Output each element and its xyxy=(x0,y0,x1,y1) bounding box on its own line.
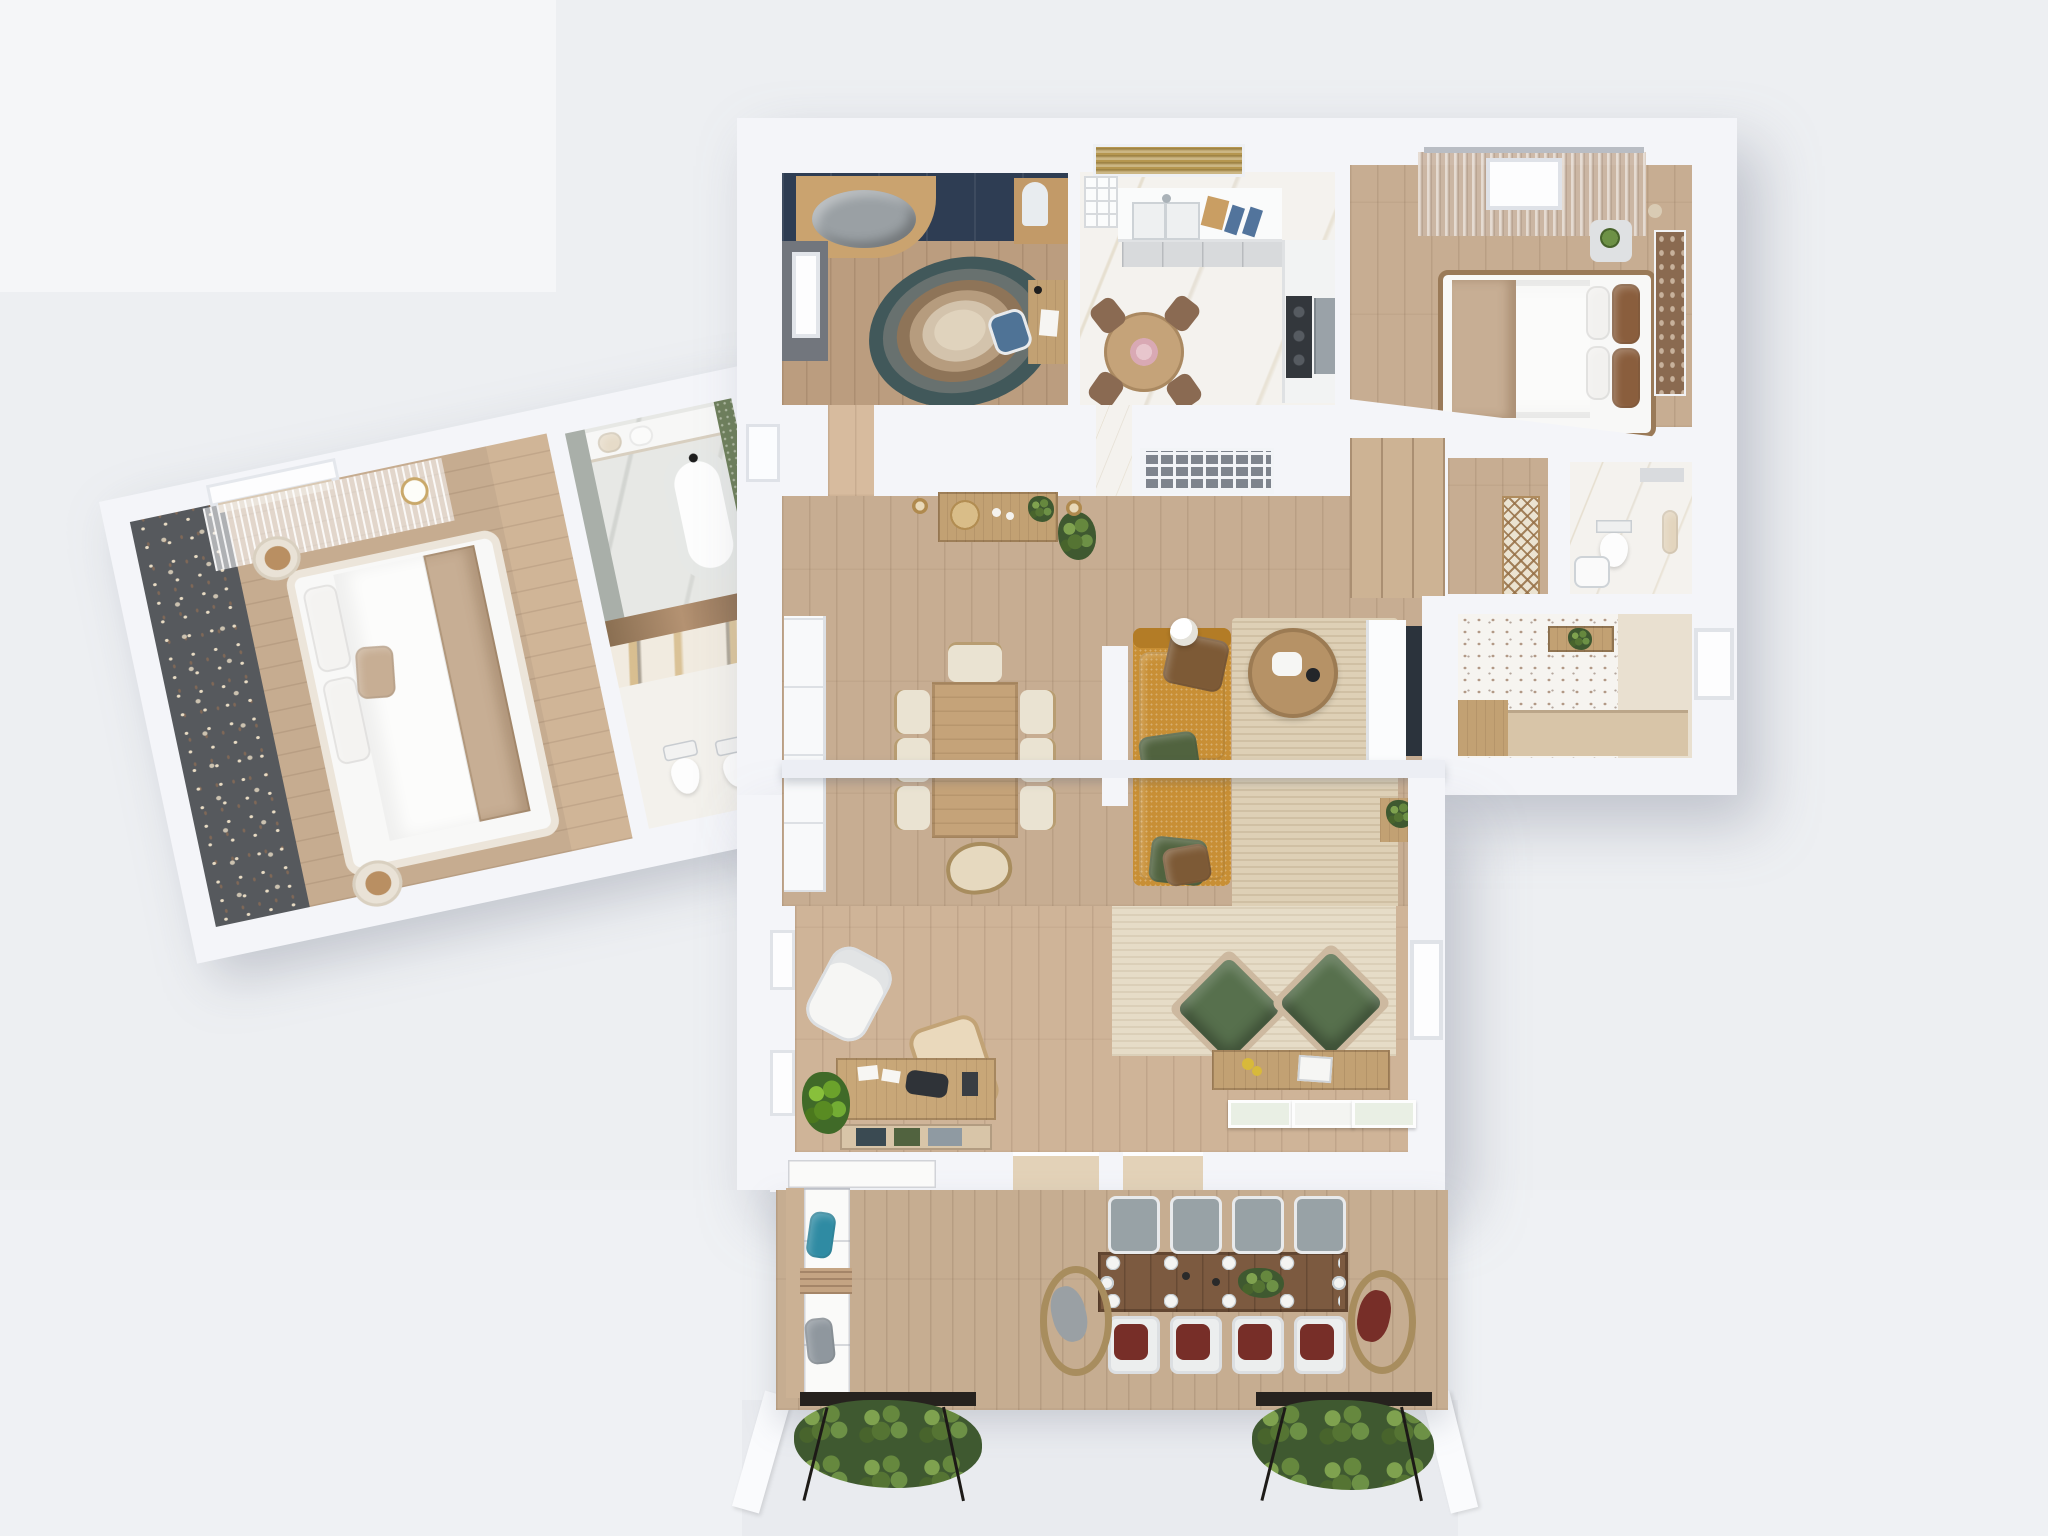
kitchen-window-blind xyxy=(1096,147,1242,174)
bed-pillow xyxy=(1586,346,1610,400)
dining-storage xyxy=(784,616,826,892)
wall-stub xyxy=(1102,646,1128,760)
left-wing xyxy=(99,365,843,964)
floor-lamp-globe xyxy=(1170,618,1198,646)
wall-kitchen-bedroom xyxy=(1335,145,1350,405)
kitchen-door-threshold xyxy=(1096,405,1132,496)
lounge-window xyxy=(770,1050,795,1116)
nook-cushion xyxy=(812,190,916,248)
console-plant xyxy=(1028,496,1054,522)
desk-lamp xyxy=(1034,286,1042,294)
hanging-plant xyxy=(1058,512,1096,560)
red-cushion xyxy=(1300,1324,1334,1360)
dining-chair xyxy=(948,642,1002,682)
towel xyxy=(1662,510,1678,554)
leaning-frame xyxy=(1228,1100,1292,1128)
pendant-light xyxy=(912,498,928,514)
desk-paper xyxy=(1039,309,1059,336)
books xyxy=(894,1128,920,1146)
red-cushion xyxy=(1176,1324,1210,1360)
sink-divider xyxy=(1164,202,1167,240)
toilet-tank xyxy=(1596,520,1632,533)
dining-chair xyxy=(894,786,930,830)
vase xyxy=(1648,204,1662,218)
hall-top-wall xyxy=(874,405,1096,496)
nook-cabinet xyxy=(1458,700,1508,756)
floorplan-render xyxy=(0,0,2048,1536)
background-patch-topleft xyxy=(0,0,556,292)
open-shelves xyxy=(1084,176,1118,228)
red-cushion xyxy=(1114,1324,1148,1360)
bed-pillow xyxy=(1586,286,1610,340)
corner-basin xyxy=(1574,556,1610,588)
wardrobe-unit xyxy=(1350,438,1445,598)
wall-art xyxy=(1654,230,1686,396)
lattice-art xyxy=(1502,496,1540,598)
opening-beam xyxy=(782,760,1445,778)
arch-mirror xyxy=(1022,182,1048,226)
headboard-pillow-brown xyxy=(1612,348,1640,408)
books xyxy=(928,1128,962,1146)
lower-cabinets xyxy=(1122,242,1282,267)
candle xyxy=(1182,1272,1190,1280)
desk-papers xyxy=(881,1069,901,1084)
brown-throw xyxy=(1161,842,1213,887)
slat-side-table xyxy=(800,1268,852,1294)
accent-pillow xyxy=(355,645,397,700)
curtain-rail xyxy=(1424,147,1644,153)
dining-chair xyxy=(1020,786,1056,830)
oven xyxy=(1314,298,1335,374)
candle xyxy=(1212,1278,1220,1286)
yellow-flowers xyxy=(1252,1066,1262,1076)
bedroom-window xyxy=(1486,158,1562,210)
tv xyxy=(1406,626,1423,756)
leaning-frame xyxy=(1352,1100,1416,1128)
radiator-grille xyxy=(1140,448,1274,494)
terrace-door xyxy=(1123,1152,1203,1192)
hall-top-wall xyxy=(782,405,828,496)
lounge-right-window xyxy=(1410,940,1443,1040)
wall-study-kitchen xyxy=(1068,145,1080,405)
console-decor xyxy=(1006,512,1014,520)
terrace-door xyxy=(1013,1152,1099,1192)
headboard-pillow-brown xyxy=(1612,284,1640,344)
shelf-plant xyxy=(1568,628,1592,650)
bed-beige-throw xyxy=(1452,280,1516,418)
cooktop xyxy=(1286,296,1312,378)
wall-hall-bath xyxy=(1548,448,1570,598)
gray-pillow xyxy=(804,1317,837,1366)
terrace-chair-gray xyxy=(1232,1196,1284,1254)
outdoor-sofa-top xyxy=(788,1160,936,1188)
dining-chair xyxy=(1020,690,1056,734)
coffee-bowl xyxy=(1306,668,1320,682)
nook-window xyxy=(1694,628,1734,700)
end-plate xyxy=(1332,1276,1346,1290)
terrace-chair-gray xyxy=(1294,1196,1346,1254)
tv-wall xyxy=(1422,596,1445,778)
study-window xyxy=(792,252,820,338)
red-cushion xyxy=(1238,1324,1272,1360)
terrace-chair-gray xyxy=(1108,1196,1160,1254)
pendant-light xyxy=(1066,500,1082,516)
lounge-window xyxy=(770,930,795,990)
nightstand-plant xyxy=(1600,228,1620,248)
gold-tray xyxy=(950,500,980,530)
books xyxy=(856,1128,886,1146)
wall-bath-nook xyxy=(1445,594,1692,614)
terrace-chair-gray xyxy=(1170,1196,1222,1254)
dining-chair xyxy=(894,690,930,734)
coffee-tray xyxy=(1272,652,1302,676)
place-settings-row xyxy=(1106,1256,1340,1270)
entry-door-recess xyxy=(746,424,780,482)
study-door-threshold xyxy=(828,405,874,496)
flower-centerpiece xyxy=(1130,338,1158,366)
desk-papers xyxy=(857,1065,878,1081)
desk-plant xyxy=(802,1072,850,1134)
wall-stub xyxy=(1102,778,1128,806)
table-centerpiece xyxy=(1238,1268,1284,1298)
desk-speaker xyxy=(962,1072,978,1096)
decor-books xyxy=(1297,1055,1333,1083)
faucet xyxy=(1162,194,1171,203)
bath-shelf xyxy=(1640,468,1684,482)
place-settings-row xyxy=(1106,1294,1340,1308)
media-cabinet xyxy=(1366,620,1406,766)
console-decor xyxy=(992,508,1001,517)
leaning-frame xyxy=(1292,1100,1354,1128)
